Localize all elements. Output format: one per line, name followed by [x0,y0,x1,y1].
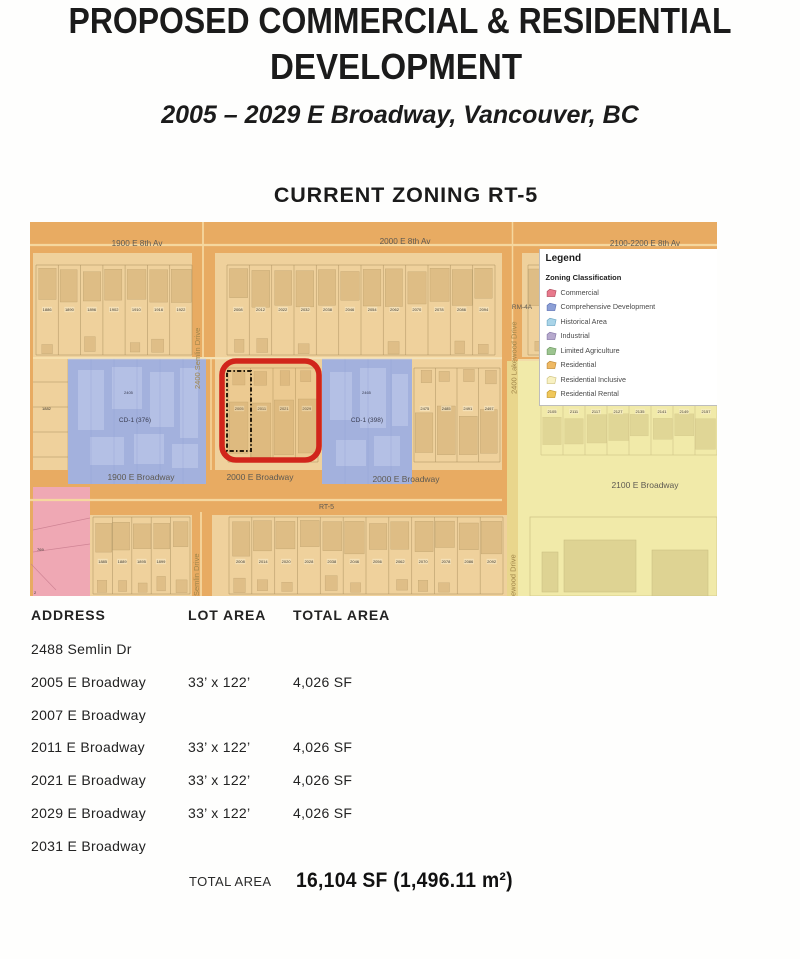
svg-text:2000 E 8th Av: 2000 E 8th Av [380,237,432,246]
svg-text:1896: 1896 [87,307,97,312]
svg-text:2062: 2062 [390,307,400,312]
svg-text:RT-5: RT-5 [319,504,334,511]
svg-text:2092: 2092 [487,559,497,564]
svg-text:2046: 2046 [345,307,355,312]
svg-text:2465: 2465 [362,390,372,395]
svg-text:2100-2200 E 8th Av: 2100-2200 E 8th Av [610,239,680,248]
svg-text:769: 769 [37,547,44,552]
svg-text:2062: 2062 [396,559,406,564]
svg-text:2127: 2127 [614,409,624,414]
svg-text:2014: 2014 [259,559,269,564]
svg-text:2008: 2008 [236,559,246,564]
svg-text:2054: 2054 [368,307,378,312]
svg-text:2485: 2485 [442,406,452,411]
svg-text:2475: 2475 [420,406,430,411]
svg-text:2032: 2032 [301,307,311,312]
svg-text:1882: 1882 [42,406,52,411]
svg-text:1885: 1885 [98,559,108,564]
svg-text:2497: 2497 [485,406,495,411]
svg-text:ewood Drive: ewood Drive [509,554,518,596]
svg-text:2086: 2086 [464,559,474,564]
svg-text:1890: 1890 [65,307,75,312]
svg-text:CD-1 (398): CD-1 (398) [351,417,383,424]
svg-text:1899: 1899 [156,559,166,564]
svg-text:1910: 1910 [132,307,142,312]
svg-text:2046: 2046 [350,559,360,564]
svg-text:1922: 1922 [176,307,186,312]
svg-text:2020: 2020 [282,559,292,564]
svg-text:RM-4A: RM-4A [512,304,533,311]
svg-text:2141: 2141 [658,409,668,414]
svg-text:2038: 2038 [327,559,337,564]
svg-text:2038: 2038 [323,307,333,312]
svg-text:CD-1 (376): CD-1 (376) [119,417,151,424]
svg-text:2012: 2012 [256,307,266,312]
svg-text:2000 E Broadway: 2000 E Broadway [226,472,294,482]
svg-text:1900 E 8th Av: 1900 E 8th Av [112,239,164,248]
svg-text:2149: 2149 [680,409,690,414]
svg-text:2491: 2491 [463,406,473,411]
svg-text:2000 E Broadway: 2000 E Broadway [372,474,440,484]
svg-text:2078: 2078 [441,559,451,564]
svg-text:1902: 1902 [110,307,120,312]
svg-text:2117: 2117 [592,409,601,414]
svg-text:2111: 2111 [570,409,579,414]
svg-text:1900 E Broadway: 1900 E Broadway [107,472,175,482]
svg-text:2056: 2056 [373,559,383,564]
svg-text:2105: 2105 [548,409,558,414]
svg-text:2028: 2028 [304,559,314,564]
svg-text:2100 E Broadway: 2100 E Broadway [611,480,679,490]
svg-text:2400 Lakewood Drive: 2400 Lakewood Drive [510,321,519,394]
svg-text:2022: 2022 [278,307,288,312]
svg-text:1916: 1916 [154,307,164,312]
svg-text:2405: 2405 [124,390,134,395]
svg-text:2157: 2157 [702,409,712,414]
svg-text:2135: 2135 [636,409,646,414]
svg-text:1895: 1895 [137,559,147,564]
svg-text:2070: 2070 [412,307,422,312]
svg-text:2070: 2070 [419,559,429,564]
svg-text:2094: 2094 [479,307,489,312]
svg-text:2008: 2008 [234,307,244,312]
svg-text:1889: 1889 [118,559,128,564]
svg-text:2400 Semlin Drive: 2400 Semlin Drive [193,328,202,389]
svg-text:1886: 1886 [43,307,53,312]
svg-text:2078: 2078 [435,307,445,312]
svg-text:Semlin Drive: Semlin Drive [192,553,201,596]
svg-text:2086: 2086 [457,307,467,312]
